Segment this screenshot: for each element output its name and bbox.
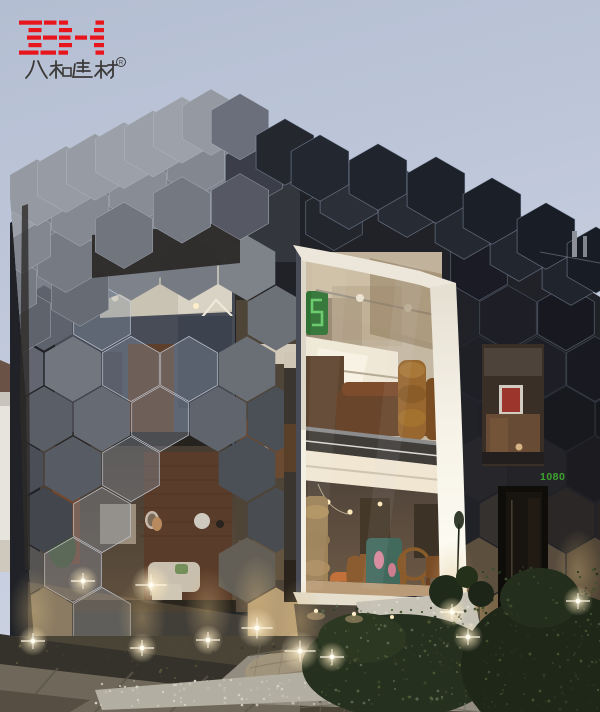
svg-text:1080: 1080 xyxy=(540,471,565,483)
svg-text:R: R xyxy=(119,61,124,67)
